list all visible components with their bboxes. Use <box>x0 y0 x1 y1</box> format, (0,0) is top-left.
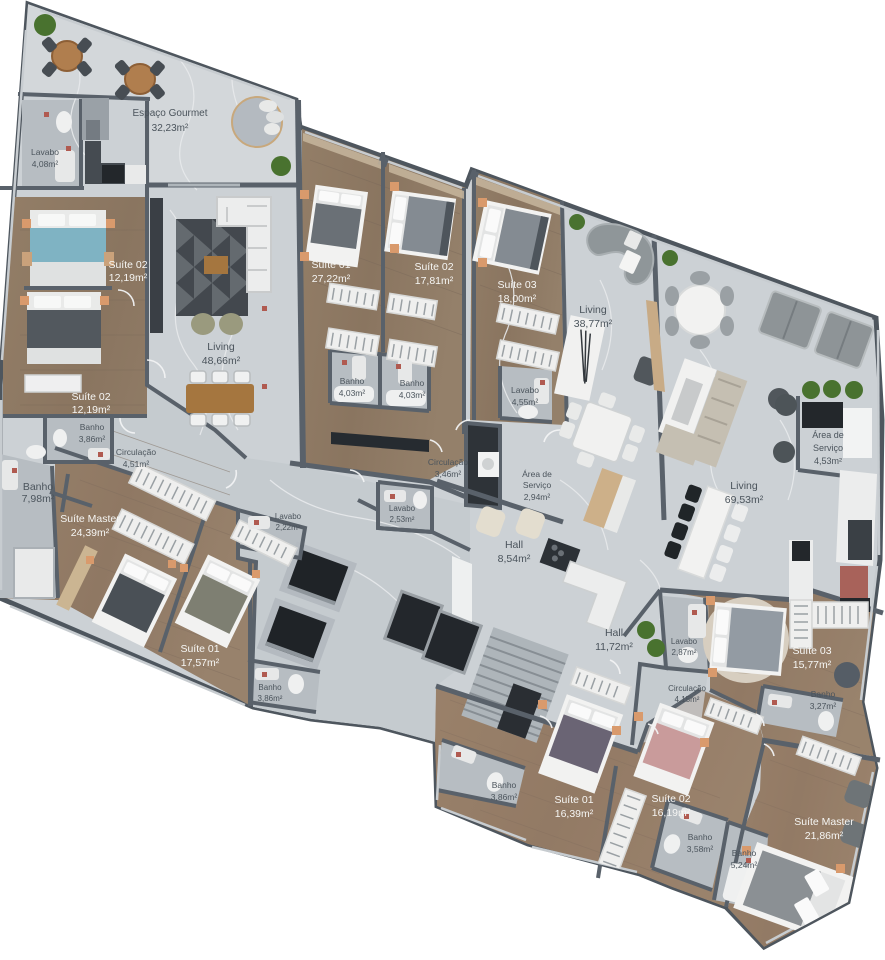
svg-text:Suíte 02: Suíte 02 <box>71 391 110 403</box>
svg-text:Banho: Banho <box>732 848 757 858</box>
svg-text:5,24m²: 5,24m² <box>731 860 758 870</box>
svg-text:3,86m²: 3,86m² <box>491 792 518 802</box>
svg-text:17,57m²: 17,57m² <box>181 657 220 669</box>
svg-text:Suíte 03: Suíte 03 <box>497 279 536 291</box>
svg-text:15,77m²: 15,77m² <box>793 659 832 671</box>
svg-text:69,53m²: 69,53m² <box>725 494 764 506</box>
svg-text:32,23m²: 32,23m² <box>152 123 189 134</box>
svg-text:Suíte 01: Suíte 01 <box>554 794 593 806</box>
svg-text:Suíte 02: Suíte 02 <box>108 259 147 271</box>
svg-text:Living: Living <box>207 341 235 353</box>
svg-text:16,39m²: 16,39m² <box>555 808 594 820</box>
svg-text:Suíte 03: Suíte 03 <box>792 645 831 657</box>
svg-text:Hall: Hall <box>505 539 523 551</box>
svg-text:Lavabo: Lavabo <box>31 147 59 157</box>
svg-text:21,86m²: 21,86m² <box>805 830 844 842</box>
svg-text:4,55m²: 4,55m² <box>512 397 539 407</box>
svg-text:18,00m²: 18,00m² <box>498 293 537 305</box>
svg-text:4,53m²: 4,53m² <box>814 456 842 466</box>
svg-text:24,39m²: 24,39m² <box>71 527 110 539</box>
svg-text:48,66m²: 48,66m² <box>202 355 241 367</box>
svg-text:8,54m²: 8,54m² <box>498 553 531 565</box>
svg-text:3,86m²: 3,86m² <box>79 434 106 444</box>
svg-text:Lavabo: Lavabo <box>389 504 416 513</box>
svg-text:Suíte 02: Suíte 02 <box>414 261 453 273</box>
svg-text:Suíte Master: Suíte Master <box>60 513 120 525</box>
svg-text:16,19m²: 16,19m² <box>652 807 691 819</box>
svg-text:Living: Living <box>579 304 607 316</box>
svg-text:3,27m²: 3,27m² <box>810 701 837 711</box>
svg-text:Banho: Banho <box>23 481 54 493</box>
svg-text:Serviço: Serviço <box>813 443 843 453</box>
svg-text:Circulação: Circulação <box>668 684 706 693</box>
svg-text:12,19m²: 12,19m² <box>72 404 111 416</box>
svg-text:Área de: Área de <box>522 469 552 479</box>
svg-text:Banho: Banho <box>340 376 365 386</box>
svg-text:Banho: Banho <box>400 378 425 388</box>
svg-text:Suíte 01: Suíte 01 <box>311 259 350 271</box>
svg-text:2,87m²: 2,87m² <box>672 648 697 657</box>
svg-text:4,03m²: 4,03m² <box>339 388 366 398</box>
svg-text:11,72m²: 11,72m² <box>595 641 633 653</box>
svg-text:Banho: Banho <box>80 422 105 432</box>
svg-text:17,81m²: 17,81m² <box>415 275 454 287</box>
svg-text:2,94m²: 2,94m² <box>524 492 551 502</box>
svg-text:4,03m²: 4,03m² <box>399 390 426 400</box>
svg-text:Banho: Banho <box>811 689 836 699</box>
svg-text:Lavabo: Lavabo <box>671 637 698 646</box>
svg-text:Hall: Hall <box>605 627 623 639</box>
svg-text:Suíte 02: Suíte 02 <box>651 793 690 805</box>
svg-text:Banho: Banho <box>258 683 282 692</box>
svg-text:4,08m²: 4,08m² <box>32 159 59 169</box>
svg-text:Circulação: Circulação <box>428 457 468 467</box>
svg-text:Circulação: Circulação <box>116 447 156 457</box>
svg-text:Banho: Banho <box>688 832 713 842</box>
svg-text:7,98m²: 7,98m² <box>22 493 55 505</box>
svg-text:Lavabo: Lavabo <box>511 385 539 395</box>
svg-text:3,46m²: 3,46m² <box>435 469 462 479</box>
svg-text:Lavabo: Lavabo <box>275 512 302 521</box>
svg-text:3,86m²: 3,86m² <box>258 694 283 703</box>
svg-text:3,58m²: 3,58m² <box>687 844 714 854</box>
svg-text:Suíte 01: Suíte 01 <box>180 643 219 655</box>
svg-text:Espaço Gourmet: Espaço Gourmet <box>132 108 207 119</box>
svg-text:4,15m²: 4,15m² <box>675 695 700 704</box>
svg-text:Banho: Banho <box>492 780 517 790</box>
svg-text:38,77m²: 38,77m² <box>574 318 613 330</box>
svg-text:4,51m²: 4,51m² <box>123 459 150 469</box>
svg-text:Suíte Master: Suíte Master <box>794 816 854 828</box>
svg-text:2,53m²: 2,53m² <box>390 515 415 524</box>
svg-text:Serviço: Serviço <box>523 480 552 490</box>
svg-text:Living: Living <box>730 480 758 492</box>
svg-text:2,22m²: 2,22m² <box>276 523 301 532</box>
svg-text:Área de: Área de <box>812 430 844 440</box>
svg-text:12,19m²: 12,19m² <box>109 272 148 284</box>
svg-text:27,22m²: 27,22m² <box>312 273 351 285</box>
